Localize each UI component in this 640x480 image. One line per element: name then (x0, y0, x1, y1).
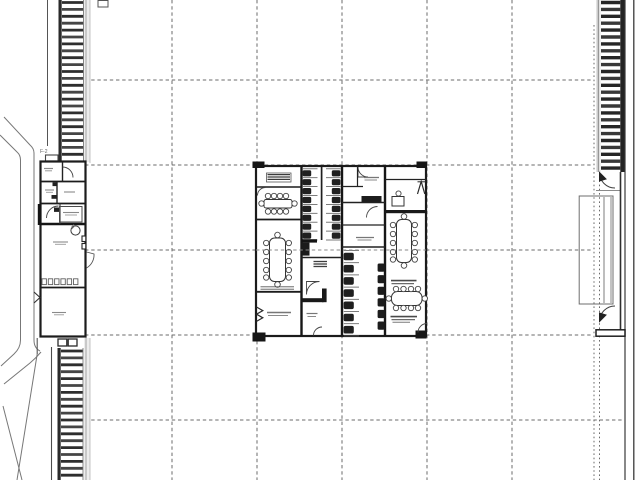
svg-text:F-2: F-2 (40, 149, 48, 155)
